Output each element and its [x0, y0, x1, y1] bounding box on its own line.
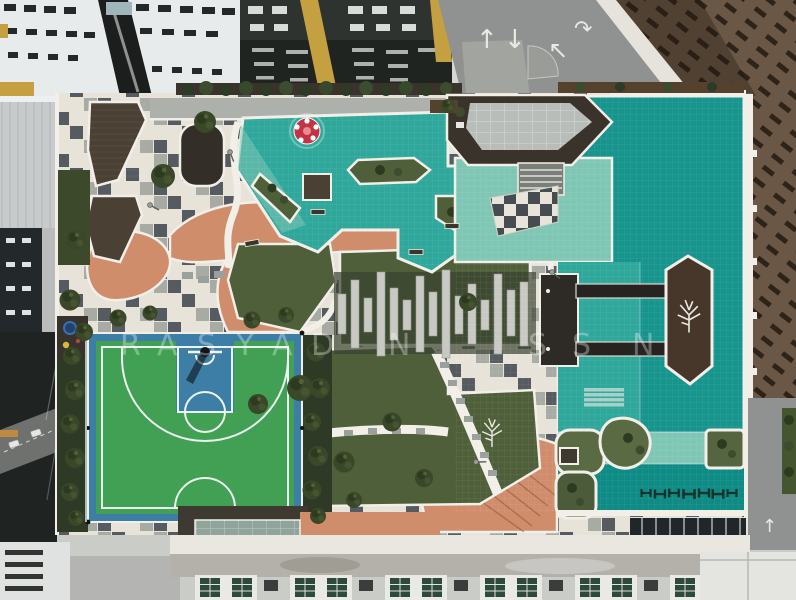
side-planting: [58, 170, 90, 265]
mushroom-fountain: [290, 114, 324, 148]
rooftop-parapet: [170, 535, 750, 556]
townhouse-unit: [195, 575, 257, 600]
concrete-wall: [170, 554, 750, 577]
townhouse-unit: [480, 575, 542, 600]
arrow-up-icon: ↑: [762, 516, 777, 537]
shrub-strip-right: [300, 335, 332, 532]
townhouse-unit: [290, 575, 352, 600]
street-gap-left: [0, 332, 57, 542]
townhouse-unit: [575, 575, 637, 600]
pool-island: [666, 256, 712, 384]
pool-deck-square: [303, 174, 331, 200]
yellow-awning: [0, 82, 34, 96]
road-right: ↑: [748, 398, 796, 550]
yellow-awning: [0, 24, 8, 38]
hedge-top: [176, 81, 462, 96]
building-top-dark: [240, 0, 468, 96]
glass-skybridge: [106, 2, 132, 15]
arrow-turn-icon: ↷: [574, 17, 592, 42]
townhouse-unit: [385, 575, 447, 600]
main-pool: [430, 82, 757, 518]
seating-nook: [180, 124, 224, 186]
basketball-court: [86, 331, 305, 525]
arrow-up-icon: ↑: [476, 25, 498, 55]
arrow-down-icon: ↓: [504, 25, 526, 55]
aerial-photo: ↑ ↓ ↖ ↷: [0, 0, 796, 600]
solar-panels: [630, 518, 746, 536]
arrow-upleft-icon: ↖: [548, 36, 568, 64]
